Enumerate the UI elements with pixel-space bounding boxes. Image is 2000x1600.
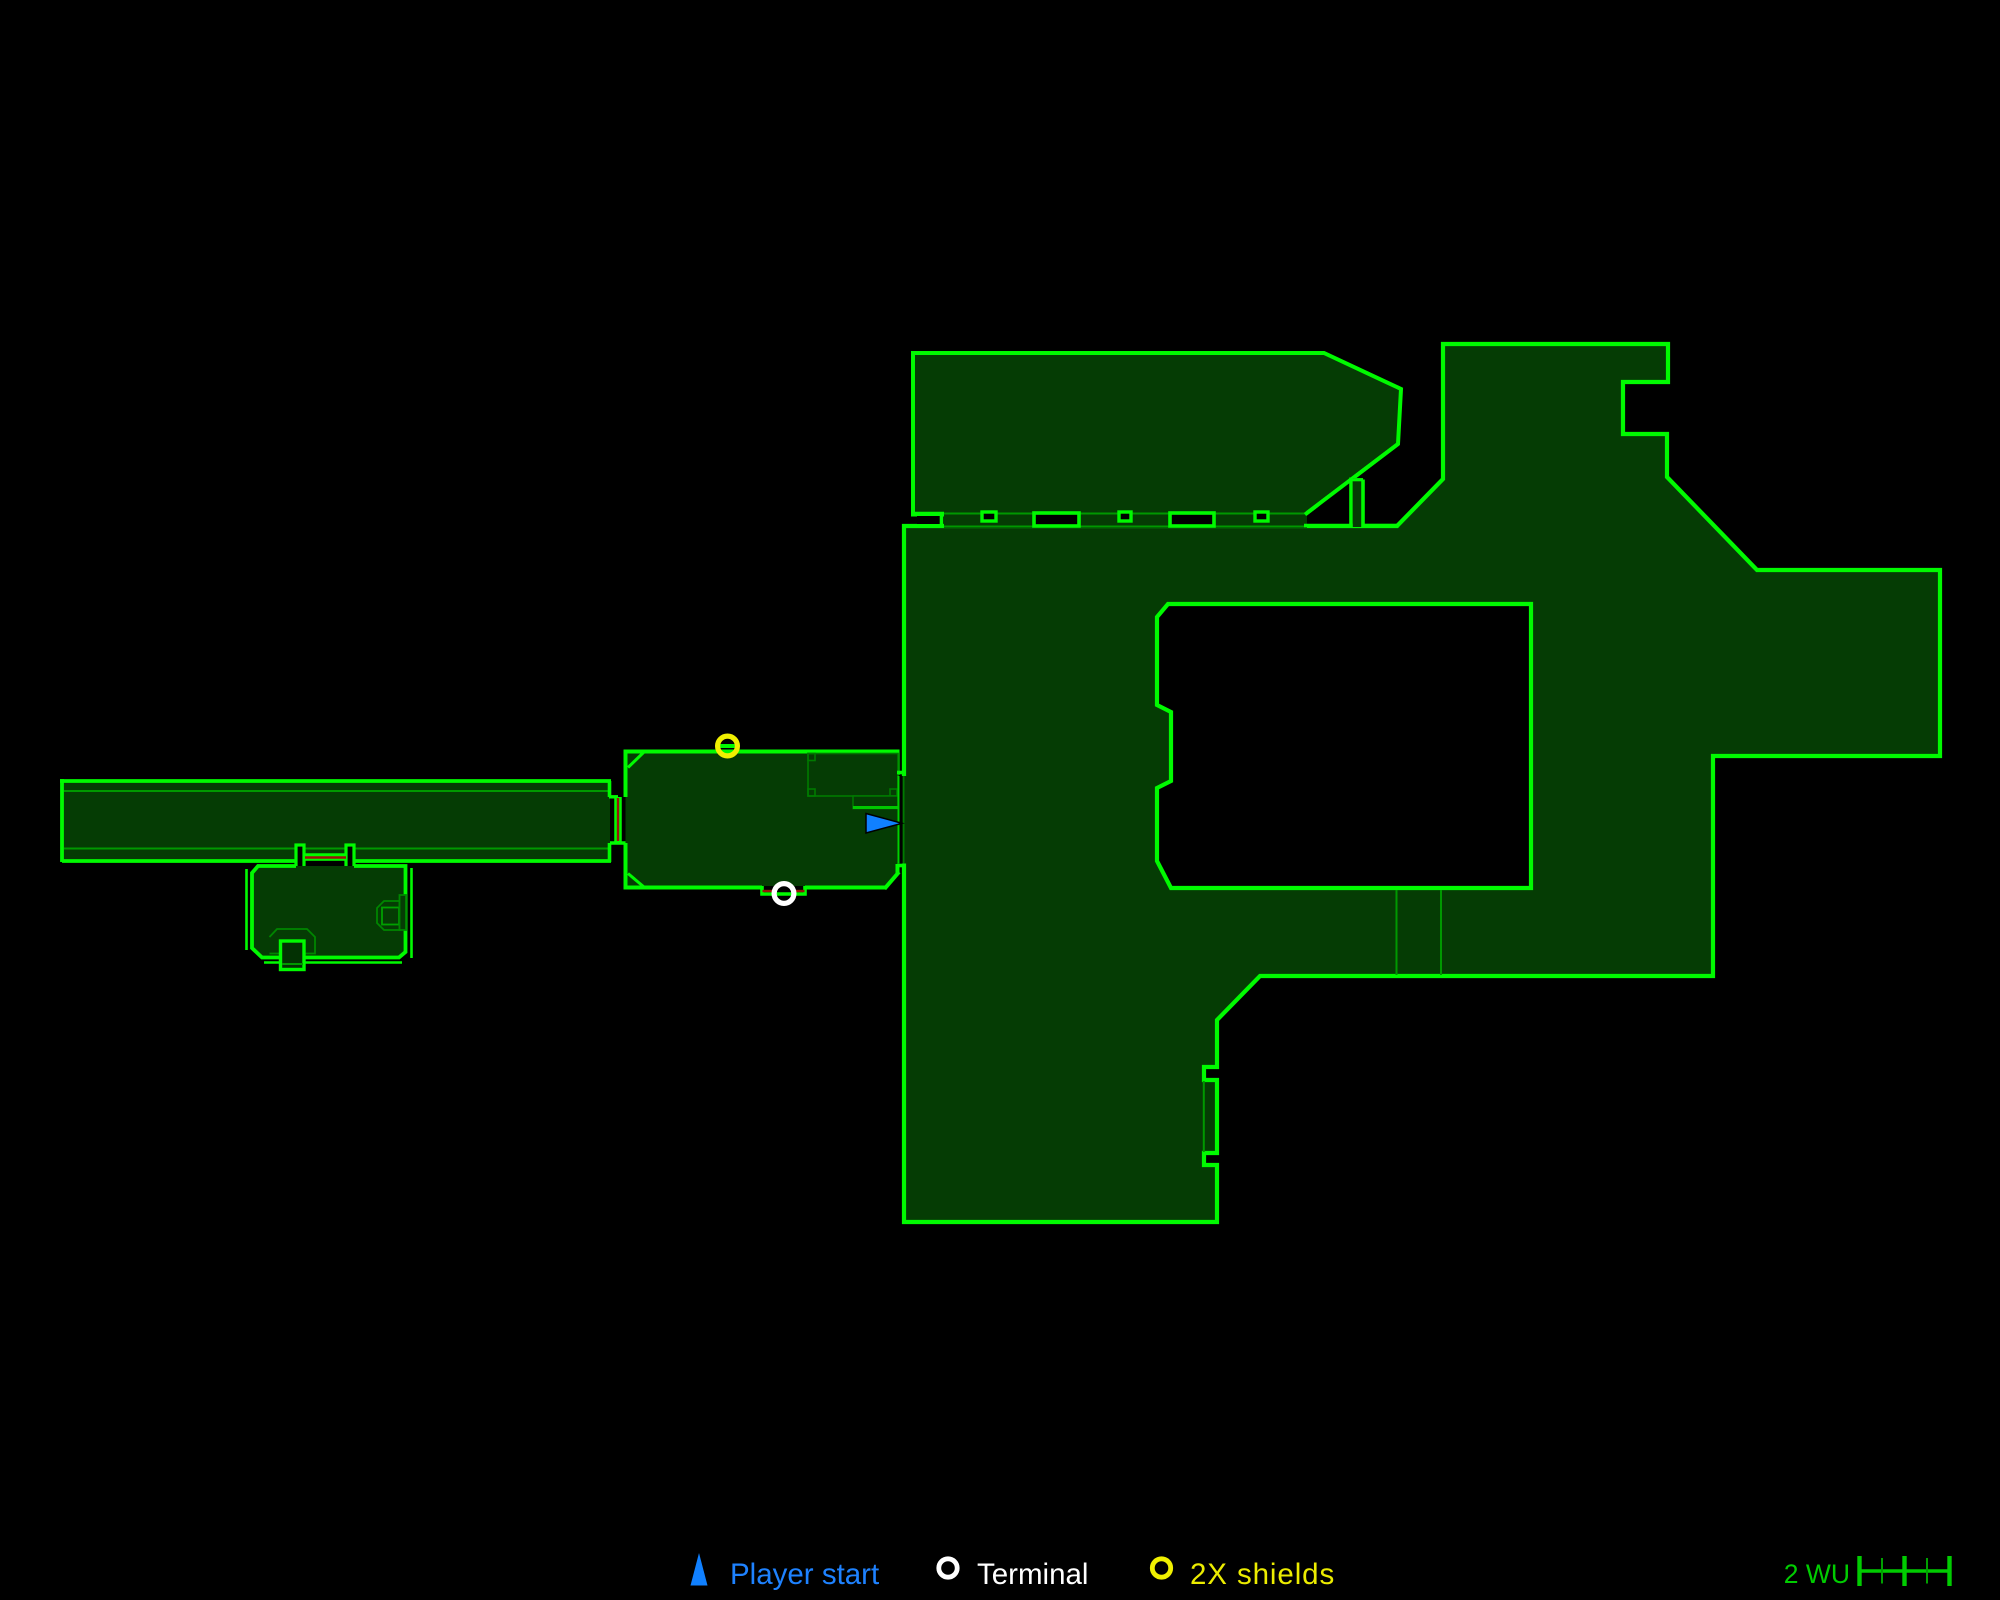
svg-text:Player start: Player start: [730, 1558, 879, 1591]
svg-text:Terminal: Terminal: [977, 1558, 1088, 1591]
svg-text:2X shields: 2X shields: [1190, 1558, 1335, 1591]
svg-text:2 WU: 2 WU: [1784, 1559, 1850, 1589]
